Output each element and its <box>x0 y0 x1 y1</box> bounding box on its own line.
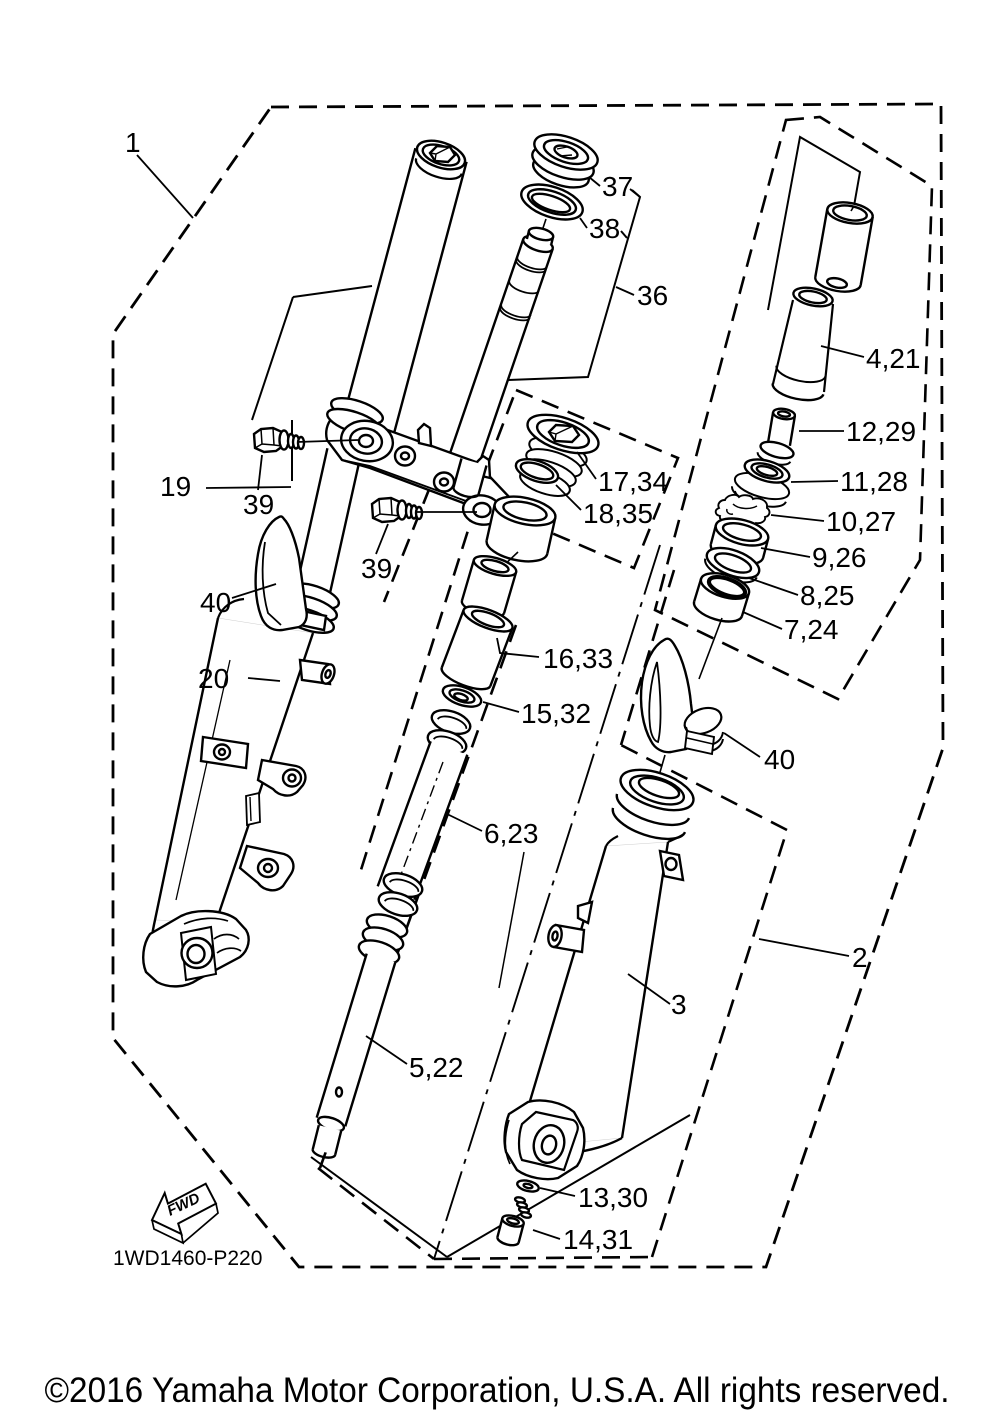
svg-text:13,30: 13,30 <box>578 1182 648 1213</box>
svg-text:37: 37 <box>602 171 633 202</box>
svg-text:12,29: 12,29 <box>846 416 916 447</box>
svg-text:6,23: 6,23 <box>484 818 539 849</box>
svg-text:36: 36 <box>637 280 668 311</box>
svg-text:40: 40 <box>764 744 795 775</box>
svg-text:16,33: 16,33 <box>543 643 613 674</box>
svg-text:15,32: 15,32 <box>521 698 591 729</box>
svg-text:8,25: 8,25 <box>800 580 855 611</box>
svg-text:7,24: 7,24 <box>784 614 839 645</box>
svg-text:9,26: 9,26 <box>812 542 867 573</box>
svg-text:20: 20 <box>198 663 229 694</box>
svg-text:11,28: 11,28 <box>840 466 908 497</box>
svg-text:18,35: 18,35 <box>583 498 653 529</box>
svg-text:3: 3 <box>671 989 687 1020</box>
svg-text:19: 19 <box>160 471 191 502</box>
svg-text:39: 39 <box>361 553 392 584</box>
svg-text:14,31: 14,31 <box>563 1224 633 1255</box>
svg-text:5,22: 5,22 <box>409 1052 464 1083</box>
svg-text:10,27: 10,27 <box>826 506 896 537</box>
svg-text:17,34: 17,34 <box>598 466 668 497</box>
svg-text:4,21: 4,21 <box>866 343 921 374</box>
svg-text:39: 39 <box>243 489 274 520</box>
svg-text:40: 40 <box>200 587 231 618</box>
svg-text:2: 2 <box>852 942 868 973</box>
svg-text:1WD1460-P220: 1WD1460-P220 <box>113 1247 262 1270</box>
svg-text:38: 38 <box>589 213 620 244</box>
svg-text:1: 1 <box>125 127 141 158</box>
svg-text:©2016 Yamaha Motor Corporation: ©2016 Yamaha Motor Corporation, U.S.A. A… <box>45 1371 950 1410</box>
